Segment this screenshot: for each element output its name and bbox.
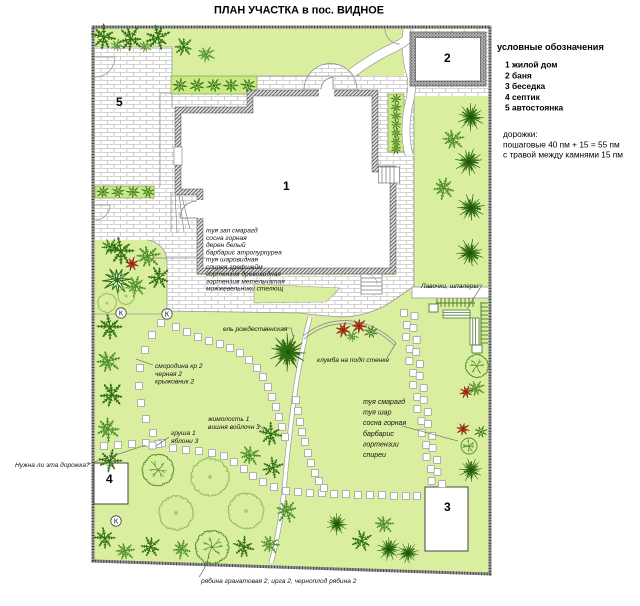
svg-text:3 беседка: 3 беседка [505, 81, 546, 91]
svg-text:1 жилой дом: 1 жилой дом [505, 60, 557, 70]
svg-text:туя зап смарагд: туя зап смарагд [206, 227, 258, 235]
svg-text:Нужна ли эта дорожка?: Нужна ли эта дорожка? [15, 461, 90, 469]
svg-text:3: 3 [444, 500, 451, 514]
svg-text:яблони 3: яблони 3 [170, 437, 199, 445]
svg-text:вишня войлочн 3: вишня войлочн 3 [208, 423, 260, 431]
svg-text:с травой между камнями 15 пм: с травой между камнями 15 пм [503, 150, 623, 160]
svg-text:4: 4 [106, 472, 113, 486]
svg-text:дорожки:: дорожки: [503, 129, 538, 139]
svg-text:5 автостоянка: 5 автостоянка [505, 103, 563, 113]
svg-text:туя шаровидная: туя шаровидная [206, 256, 259, 264]
svg-text:сосна горная: сосна горная [206, 235, 247, 242]
svg-text:жимолость 1: жимолость 1 [207, 416, 250, 423]
svg-text:туя шар: туя шар [363, 410, 392, 417]
svg-text:гортензия древовидная: гортензия древовидная [206, 270, 281, 278]
svg-text:ПЛАН УЧАСТКА в пос. ВИДНОЕ: ПЛАН УЧАСТКА в пос. ВИДНОЕ [214, 5, 384, 17]
svg-text:клумба на подп стенке: клумба на подп стенке [317, 356, 390, 364]
svg-text:спиреи: спиреи [363, 452, 386, 459]
svg-text:смородина кр 2: смородина кр 2 [155, 362, 203, 370]
svg-text:барбарис: барбарис [363, 430, 394, 438]
svg-text:Лавочки, шпалеры: Лавочки, шпалеры [420, 283, 478, 290]
svg-text:можжевельники стелющ: можжевельники стелющ [206, 286, 284, 293]
svg-text:условные обозначения: условные обозначения [497, 42, 604, 52]
svg-text:спирея грефшейм: спирея грефшейм [206, 263, 263, 271]
svg-text:крыжовник 2: крыжовник 2 [155, 379, 195, 386]
svg-text:пошаговые 40 пм + 15 = 55 пм: пошаговые 40 пм + 15 = 55 пм [503, 140, 620, 150]
svg-text:груша 1: груша 1 [171, 430, 196, 437]
svg-text:гортензии: гортензии [363, 441, 399, 448]
svg-text:1: 1 [283, 179, 290, 193]
svg-text:4 септик: 4 септик [505, 92, 541, 102]
svg-text:черная 2: черная 2 [155, 371, 182, 378]
svg-text:сосна горная: сосна горная [363, 420, 406, 427]
svg-text:2 баня: 2 баня [505, 70, 532, 80]
svg-text:дерен белый: дерен белый [206, 241, 246, 249]
svg-text:туя смарагд: туя смарагд [363, 398, 405, 406]
svg-text:5: 5 [116, 95, 123, 109]
svg-text:2: 2 [444, 51, 451, 65]
svg-text:рябина гранатовая 2, ирга 2, ч: рябина гранатовая 2, ирга 2, черноплод р… [200, 577, 357, 585]
svg-text:гортензия метельчатая: гортензия метельчатая [206, 278, 285, 285]
svg-text:барбарис атропурпуреа: барбарис атропурпуреа [206, 248, 282, 256]
svg-text:ель рождественская: ель рождественская [223, 325, 288, 333]
